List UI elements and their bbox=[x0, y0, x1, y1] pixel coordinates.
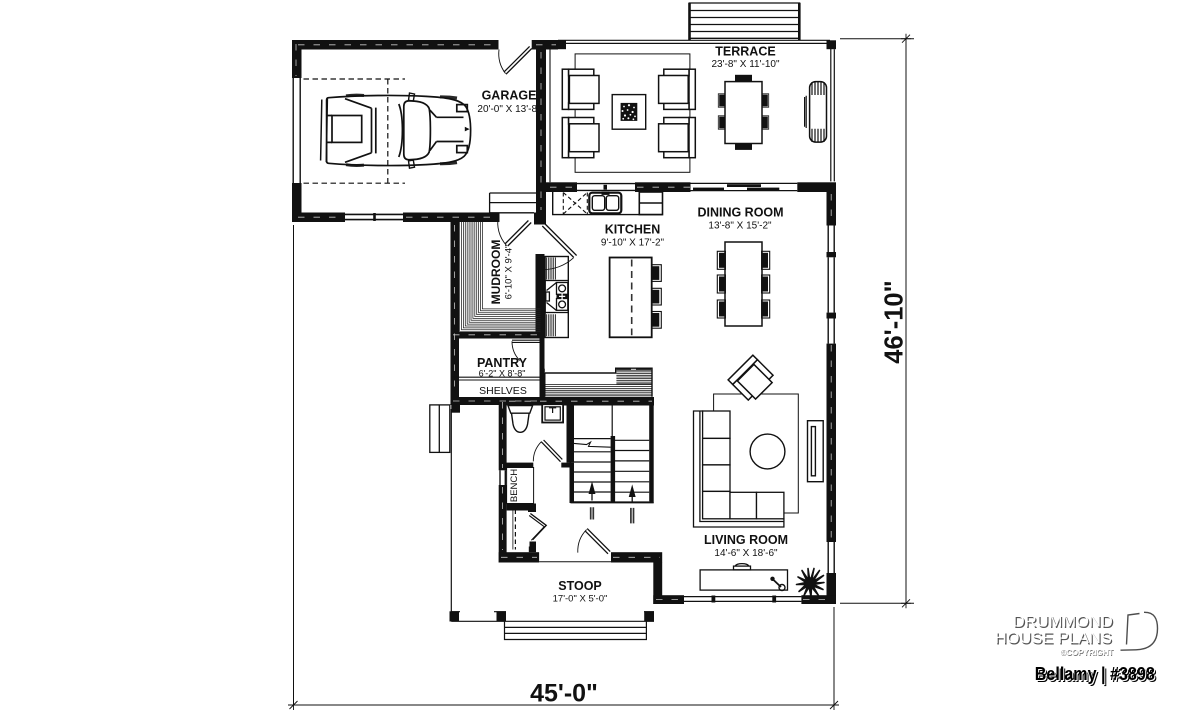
svg-text:6'-10" X 9'-4": 6'-10" X 9'-4" bbox=[504, 245, 515, 300]
svg-text:9'-10" X 17'-2": 9'-10" X 17'-2" bbox=[601, 238, 665, 249]
svg-text:KITCHEN: KITCHEN bbox=[605, 223, 661, 237]
svg-text:LIVING ROOM: LIVING ROOM bbox=[704, 533, 788, 547]
svg-text:STOOP: STOOP bbox=[558, 579, 602, 593]
svg-text:Bellamy | #3898: Bellamy | #3898 bbox=[1035, 663, 1155, 684]
svg-text:HOUSE PLANS: HOUSE PLANS bbox=[995, 630, 1112, 647]
svg-text:13'-8" X 15'-2": 13'-8" X 15'-2" bbox=[708, 221, 772, 232]
svg-text:TERRACE: TERRACE bbox=[715, 45, 775, 59]
svg-text:©COPYRIGHT: ©COPYRIGHT bbox=[1060, 647, 1114, 657]
svg-text:17'-0" X 5'-0": 17'-0" X 5'-0" bbox=[553, 594, 608, 605]
svg-text:14'-6" X 18'-6": 14'-6" X 18'-6" bbox=[714, 548, 778, 559]
svg-text:DINING ROOM: DINING ROOM bbox=[697, 206, 783, 220]
svg-text:SHELVES: SHELVES bbox=[479, 385, 527, 397]
svg-text:DRUMMOND: DRUMMOND bbox=[1013, 614, 1113, 631]
svg-text:MUDROOM: MUDROOM bbox=[489, 240, 503, 305]
svg-text:GARAGE: GARAGE bbox=[482, 89, 537, 103]
svg-text:46'-10": 46'-10" bbox=[881, 280, 909, 363]
svg-text:20'-0" X 13'-8": 20'-0" X 13'-8" bbox=[477, 104, 541, 115]
svg-text:6'-2" X 8'-8": 6'-2" X 8'-8" bbox=[479, 369, 526, 379]
svg-text:BENCH: BENCH bbox=[509, 469, 520, 502]
svg-text:23'-8" X 11'-10": 23'-8" X 11'-10" bbox=[712, 59, 780, 70]
svg-text:45'-0": 45'-0" bbox=[530, 679, 598, 707]
